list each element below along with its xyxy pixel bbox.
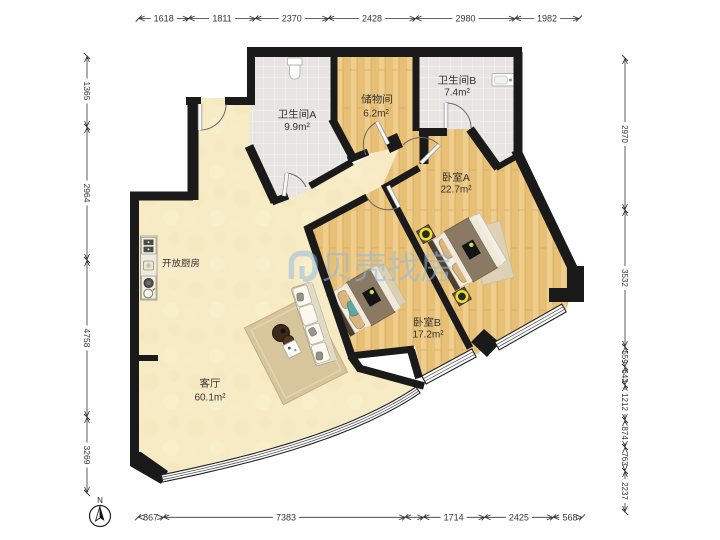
svg-text:2370: 2370 <box>282 14 302 24</box>
svg-text:1811: 1811 <box>212 14 231 24</box>
svg-text:60.1m²: 60.1m² <box>194 393 226 404</box>
svg-text:A: A <box>309 109 316 121</box>
svg-text:643: 643 <box>620 369 629 383</box>
svg-text:1714: 1714 <box>444 513 464 523</box>
svg-text:874: 874 <box>620 426 629 440</box>
svg-text:B: B <box>434 317 441 329</box>
svg-text:2970: 2970 <box>620 125 629 143</box>
svg-text:3269: 3269 <box>82 446 92 465</box>
svg-text:2428: 2428 <box>362 14 382 24</box>
svg-text:1365: 1365 <box>82 82 92 101</box>
svg-text:B: B <box>469 75 476 87</box>
svg-text:22.7m²: 22.7m² <box>440 185 472 196</box>
svg-text:7383: 7383 <box>276 513 296 523</box>
svg-text:2237: 2237 <box>620 482 629 500</box>
svg-text:1618: 1618 <box>154 14 174 24</box>
svg-text:17.2m²: 17.2m² <box>412 330 444 341</box>
svg-text:A: A <box>463 172 470 184</box>
svg-text:N: N <box>97 496 103 505</box>
svg-text:4758: 4758 <box>82 329 92 348</box>
svg-text:9.9m²: 9.9m² <box>284 122 310 133</box>
svg-text:2425: 2425 <box>509 513 529 523</box>
svg-text:1982: 1982 <box>537 14 557 24</box>
svg-text:867: 867 <box>143 513 158 523</box>
svg-text:2964: 2964 <box>82 184 92 203</box>
svg-text:2980: 2980 <box>455 14 475 24</box>
svg-text:568: 568 <box>562 513 577 523</box>
svg-text:3532: 3532 <box>620 269 629 287</box>
svg-text:6.2m²: 6.2m² <box>363 109 389 120</box>
svg-text:7.4m²: 7.4m² <box>444 88 470 99</box>
svg-text:763: 763 <box>620 452 629 466</box>
svg-text:559: 559 <box>620 350 629 364</box>
svg-text:1212: 1212 <box>620 393 629 411</box>
